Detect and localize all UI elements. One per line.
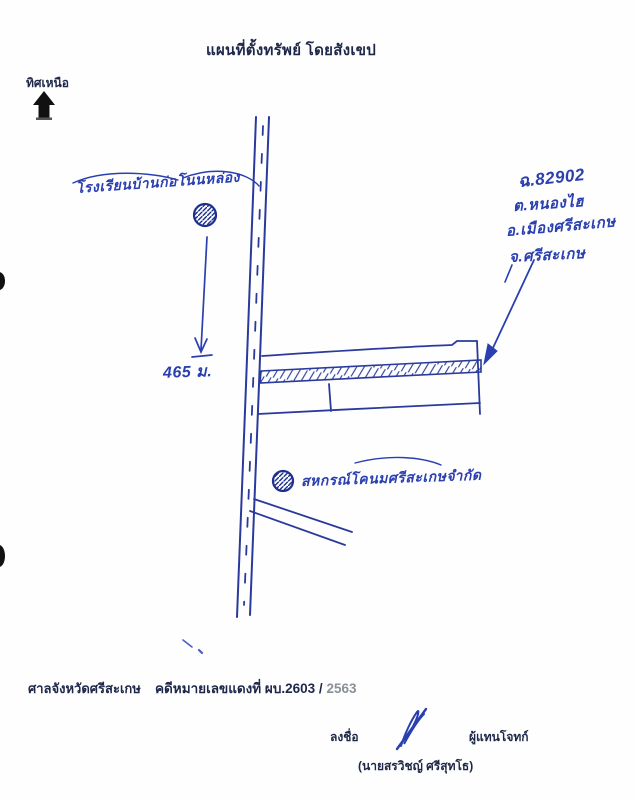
distance-arrow bbox=[192, 237, 212, 357]
distance-label: 465 ม. bbox=[163, 359, 213, 386]
school-marker-circle-icon bbox=[194, 204, 216, 226]
sign-name: (นายสรวิชญ์ ศรีสุทโธ) bbox=[358, 757, 473, 776]
parcel-pointer-arrow bbox=[484, 260, 534, 364]
north-label: ทิศเหนือ bbox=[26, 74, 69, 93]
signature-mark bbox=[397, 709, 426, 749]
main-road bbox=[237, 117, 269, 617]
north-arrow-icon bbox=[33, 91, 55, 120]
branch-road bbox=[250, 499, 352, 545]
sign-role: ผู้แทนโจทก์ bbox=[469, 728, 529, 747]
page-title: แผนที่ตั้งทรัพย์ โดยสังเขป bbox=[206, 38, 376, 62]
sign-label: ลงชื่อ bbox=[330, 728, 359, 747]
coop-marker-circle-icon bbox=[273, 471, 293, 491]
court-name: ศาลจังหวัดศรีสะเกษ bbox=[28, 678, 141, 699]
case-number: คดีหมายเลขแดงที่ ผบ.2603 / 2563 bbox=[155, 677, 357, 699]
scan-artifact-marks bbox=[0, 272, 5, 567]
case-year: 2563 bbox=[326, 681, 356, 696]
case-number-label: คดีหมายเลขแดงที่ ผบ.2603 / bbox=[155, 681, 323, 696]
scanned-map-document: แผนที่ตั้งทรัพย์ โดยสังเขป ทิศเหนือ โรงเ… bbox=[0, 0, 636, 800]
parcel-province: จ.ศรีสะเกษ bbox=[508, 241, 585, 269]
property-hatched-strip-icon bbox=[260, 360, 481, 383]
stray-pen-mark bbox=[183, 640, 202, 653]
